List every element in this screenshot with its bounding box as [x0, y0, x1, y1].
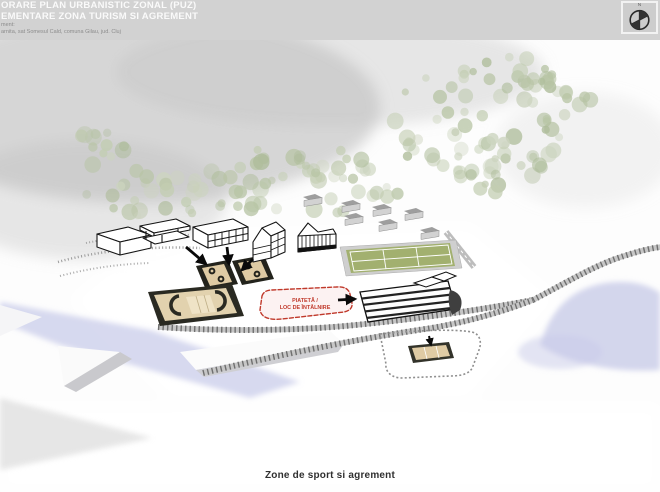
puz-plan-sheet: PIATETĂ / LOC DE ÎNTÂLNIRE — [0, 0, 660, 492]
sheet-caption: Zone de sport si agrement — [0, 470, 660, 481]
plan-title: ORARE PLAN URBANISTIC ZONAL (PUZ) EMENTA… — [1, 1, 198, 22]
piateta-label-line2: LOC DE ÎNTÂLNIRE — [280, 303, 331, 311]
plan-title-line1: ORARE PLAN URBANISTIC ZONAL (PUZ) — [1, 1, 198, 12]
north-arrow-icon — [623, 6, 656, 33]
plan-meta-line2: arnita, sat Somesul Cald, comuna Gilau, … — [1, 29, 121, 36]
plan-title-line2: EMENTARE ZONA TURISM SI AGREMENT — [1, 12, 198, 23]
plan-location-meta: ment: arnita, sat Somesul Cald, comuna G… — [1, 22, 121, 35]
title-block-header: ORARE PLAN URBANISTIC ZONAL (PUZ) EMENTA… — [0, 0, 660, 40]
site-plan-rendering: PIATETĂ / LOC DE ÎNTÂLNIRE — [0, 0, 660, 492]
piateta-label-line1: PIATETĂ / — [292, 297, 318, 304]
north-indicator: N — [621, 1, 658, 34]
